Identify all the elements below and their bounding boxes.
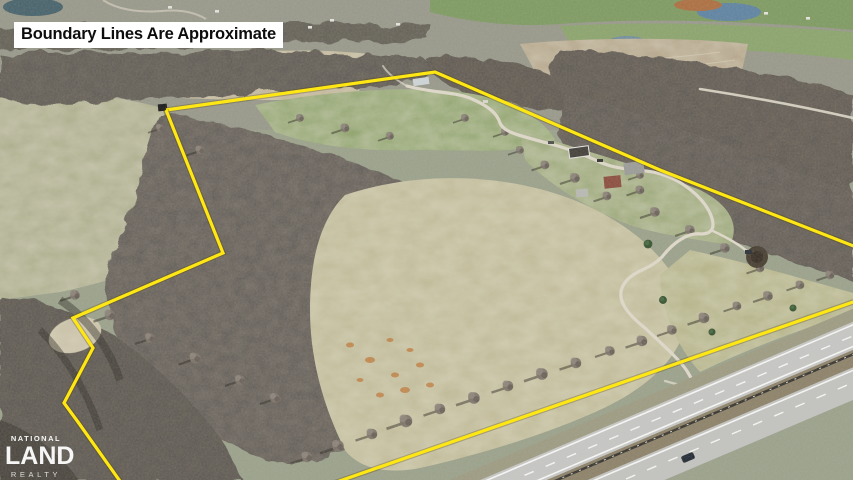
- aerial-photo: [0, 0, 853, 480]
- aerial-listing-photo: Boundary Lines Are Approximate NATIONAL …: [0, 0, 853, 480]
- logo-line-land: LAND: [5, 444, 67, 469]
- national-land-realty-logo: NATIONAL LAND REALTY: [5, 435, 67, 478]
- logo-line-realty: REALTY: [5, 471, 67, 479]
- disclaimer-banner: Boundary Lines Are Approximate: [14, 22, 283, 48]
- disclaimer-text: Boundary Lines Are Approximate: [21, 25, 276, 43]
